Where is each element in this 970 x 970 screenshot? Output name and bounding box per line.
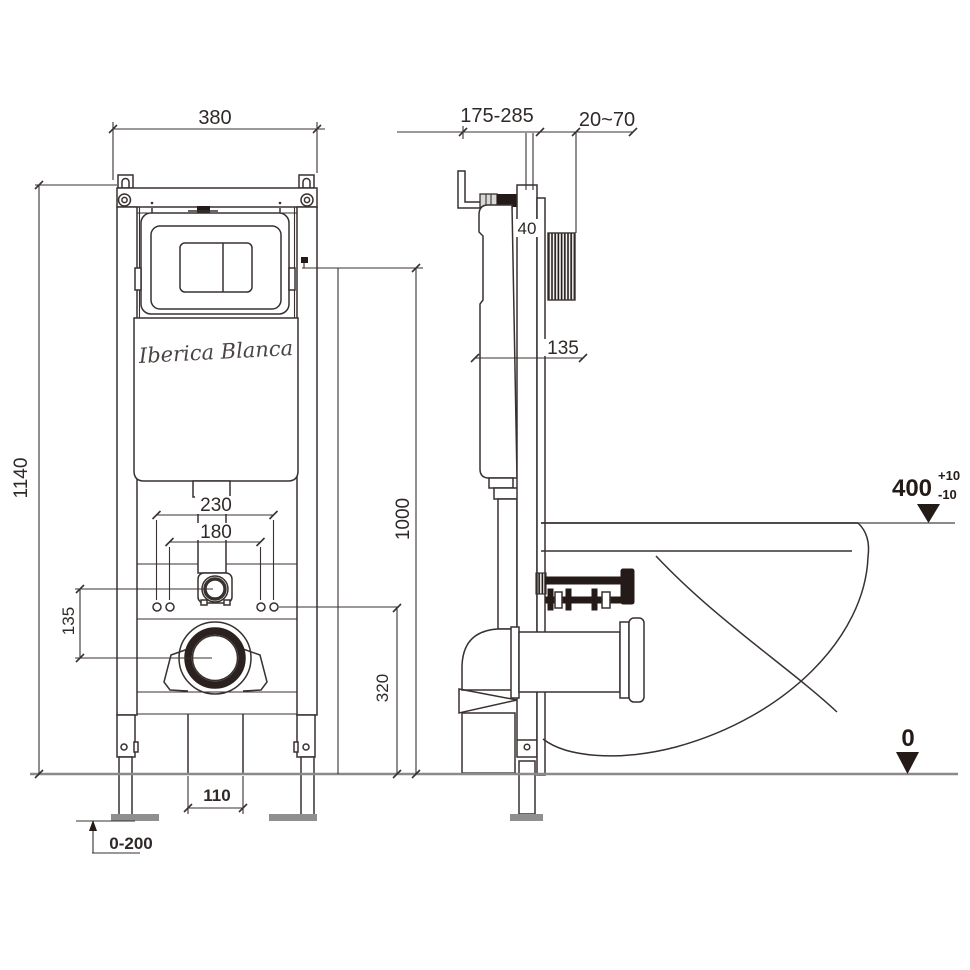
rod-pin-1 (548, 589, 553, 610)
datum-400-triangle (917, 504, 940, 523)
datum-0: 0 (896, 725, 919, 774)
side-foot-tube (519, 761, 535, 814)
fixing-hole-3 (257, 603, 265, 611)
waste-flange-inner (620, 622, 629, 698)
plate-clip-right (289, 268, 295, 290)
side-foot-plate (510, 814, 543, 821)
dim-20-70: 20~70 (572, 109, 637, 233)
inlet-foot-left (201, 600, 207, 605)
foot-tube-left (119, 757, 132, 815)
cistern-front: Iberica Blanca (134, 318, 298, 481)
datum-0-label: 0 (901, 725, 914, 752)
waste-flange-outer (629, 618, 644, 702)
drain-elbow (462, 629, 517, 690)
datum-0-triangle (896, 752, 919, 774)
dim-1140-label: 1140 (11, 458, 32, 499)
rod-pin-3 (592, 589, 597, 610)
bowl-front-edge (858, 523, 869, 557)
dim-0-200-label: 0-200 (109, 834, 152, 853)
dim-1000-label: 1000 (393, 498, 414, 540)
rivet-dot-left (151, 202, 154, 205)
flush-pipe-collar (494, 488, 520, 499)
side-view (458, 171, 955, 821)
top-crossbar (117, 188, 317, 207)
leg-tab-left (134, 742, 138, 752)
technical-drawing-page: Iberica Blanca (0, 0, 970, 970)
hanger-tab-left (118, 175, 133, 188)
dim-135-side-label: 135 (547, 338, 579, 359)
datum-400-plus: +10 (938, 468, 960, 483)
datum-400-minus: -10 (938, 487, 957, 502)
rod-washer-1 (555, 592, 562, 608)
foot-tube-right (301, 757, 314, 815)
dim-40: 40 (515, 219, 540, 238)
rod-washer-2 (602, 592, 610, 608)
dim-1000: 1000 (301, 257, 423, 778)
dim-230-label: 230 (200, 495, 232, 516)
flush-plate-assembly (135, 213, 295, 314)
drain-bracket-right (243, 649, 267, 691)
waste-pipe-collar (511, 627, 519, 698)
fixing-hole-1 (153, 603, 161, 611)
rivet-dot-right (279, 202, 282, 205)
post-right (297, 207, 317, 715)
dim-380: 380 (109, 107, 325, 180)
wall-section-hatch (548, 233, 575, 300)
foot-plate-left (111, 814, 159, 821)
dim-380-label: 380 (198, 107, 231, 129)
rod-end-block (621, 569, 634, 604)
cistern-side-profile (479, 205, 517, 478)
inlet-foot-right (224, 600, 230, 605)
fixing-hole-2 (166, 603, 174, 611)
flush-pipe-side (498, 499, 517, 629)
installation-drawing: Iberica Blanca (0, 0, 970, 970)
front-legs (111, 715, 317, 821)
bowl-inner-curve (656, 556, 837, 712)
leg-left (117, 715, 135, 757)
waste-pipe-body (519, 632, 620, 692)
drain-funnel (459, 689, 517, 713)
dim-175-285-label: 175-285 (460, 105, 533, 127)
hanger-tab-right (299, 175, 314, 188)
drain-box (462, 713, 515, 773)
datum-400-label: 400 (892, 475, 932, 502)
dim-180-label: 180 (200, 522, 232, 543)
foot-plate-right (269, 814, 317, 821)
dim-110-label: 110 (203, 786, 230, 805)
flush-buttons (180, 243, 252, 292)
dim-40-label: 40 (518, 219, 537, 238)
dim-110: 110 (184, 776, 247, 814)
dim-0-200: 0-200 (76, 820, 153, 853)
cistern-outlet-step (489, 478, 513, 488)
dim-20-70-label: 20~70 (579, 109, 635, 131)
plate-clip-left (135, 268, 141, 290)
threaded-rod-upper (546, 577, 621, 584)
leg-tab-right (294, 742, 298, 752)
dim-320-label: 320 (373, 674, 392, 702)
fixing-hole-4 (270, 603, 278, 611)
dim-135-front-label: 135 (59, 607, 78, 635)
datum-400: 400 +10 -10 (892, 468, 960, 523)
dim-1140: 1140 (11, 181, 117, 778)
rod-anchor (536, 573, 546, 594)
rod-pin-2 (566, 589, 571, 610)
